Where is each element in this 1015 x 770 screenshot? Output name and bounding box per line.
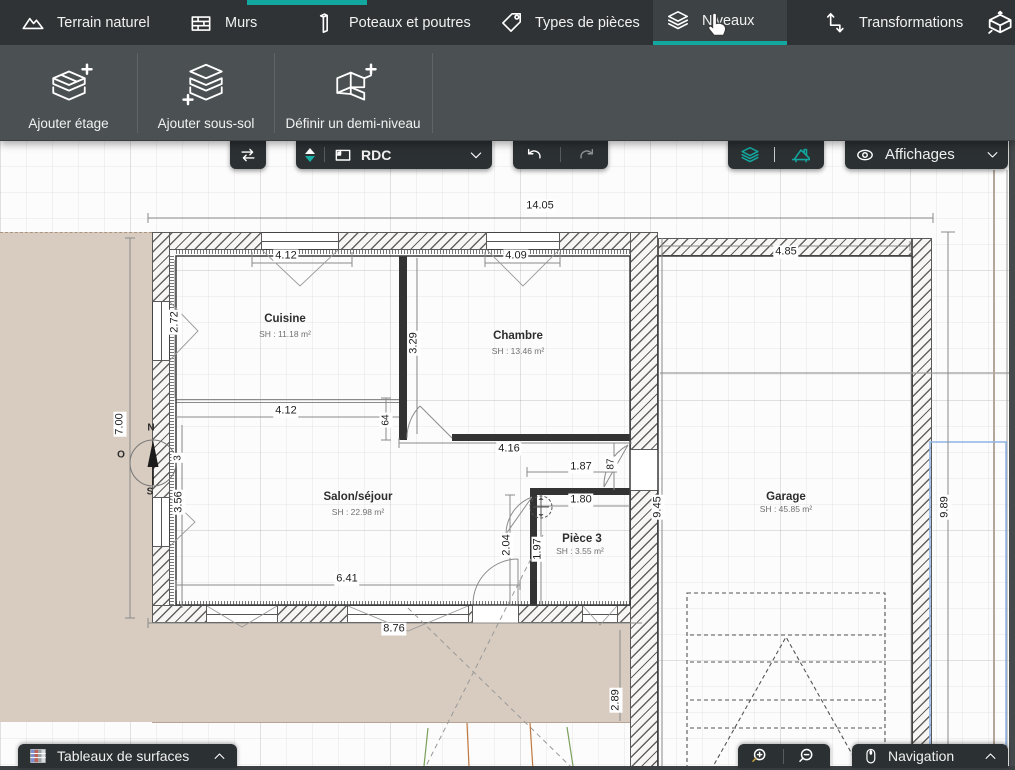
- transform-icon: [822, 10, 848, 36]
- room-area-piece3: SH : 3.55 m²: [556, 546, 604, 556]
- dimension-label: 2.89: [610, 687, 623, 712]
- surfaces-panel-toggle[interactable]: Tableaux de surfaces: [18, 744, 237, 768]
- mouse-icon: [862, 747, 879, 766]
- undo-redo-group: [513, 140, 608, 169]
- zoom-controls: [738, 744, 830, 768]
- room-name-cuisine[interactable]: Cuisine: [264, 313, 306, 325]
- add-basement-label: Ajouter sous-sol: [158, 116, 255, 131]
- tab-murs[interactable]: Murs: [176, 0, 269, 45]
- dimension-label: 3.29: [408, 330, 421, 355]
- dimension-label: 2.72: [169, 309, 182, 334]
- roof-view-icon[interactable]: [789, 144, 813, 166]
- move-handle: [530, 496, 552, 518]
- navigation-label: Navigation: [888, 748, 954, 764]
- room-area-garage: SH : 45.85 m²: [760, 504, 812, 514]
- affichages-dropdown[interactable]: Affichages: [845, 140, 1008, 169]
- dimension-label: 4.85: [773, 246, 798, 259]
- tab-terrain-naturel[interactable]: Terrain naturel: [8, 0, 162, 45]
- box-3d-icon: [984, 9, 1014, 37]
- level-selector[interactable]: RDC: [296, 140, 492, 169]
- tab-label: Murs: [225, 15, 257, 31]
- compass-west-label: O: [117, 450, 125, 461]
- room-area-chambre: SH : 13.46 m²: [492, 346, 544, 356]
- window-right-edge: [1009, 140, 1015, 770]
- dimension-label: 14.05: [524, 200, 556, 213]
- tab-label: Poteaux et poutres: [349, 15, 471, 31]
- compass-south-label: S: [147, 487, 154, 498]
- tab-label: Terrain naturel: [57, 15, 150, 31]
- dimension-label: 87: [605, 456, 618, 471]
- divider: [560, 147, 561, 162]
- dimension-label: 1.80: [568, 494, 593, 507]
- tag-icon: [498, 10, 524, 36]
- surface-table-icon: [28, 747, 48, 765]
- bricks-icon: [188, 10, 214, 36]
- tab-label: Niveaux: [702, 13, 754, 29]
- view-mode-group: [728, 140, 824, 169]
- floorplan-icon: [333, 145, 353, 165]
- affichages-label: Affichages: [885, 146, 955, 163]
- tab-transformations[interactable]: Transformations: [810, 0, 975, 45]
- eye-icon: [853, 145, 877, 165]
- chevron-down-icon: [468, 147, 484, 163]
- tab-overflow-partial[interactable]: [980, 0, 1015, 45]
- dimension-label: 9.89: [939, 494, 952, 519]
- dimension-label: 4.12: [273, 405, 298, 418]
- define-half-level-label: Définir un demi-niveau: [285, 116, 420, 131]
- tab-types-de-pieces[interactable]: Types de pièces: [486, 0, 652, 45]
- tab-poteaux-et-poutres[interactable]: Poteaux et poutres: [300, 0, 483, 45]
- room-name-salon[interactable]: Salon/séjour: [323, 491, 392, 503]
- compass-north-label: N: [147, 423, 154, 434]
- swap-icon: [238, 145, 258, 165]
- add-floor-label: Ajouter étage: [28, 116, 108, 131]
- tab-label: Transformations: [859, 15, 963, 31]
- dimension-label: 8.76: [381, 623, 406, 636]
- dimension-label: 4.16: [496, 443, 521, 456]
- application-window: Terrain naturel Murs Poteaux et poutres …: [0, 0, 1015, 770]
- room-area-salon: SH : 22.98 m²: [332, 507, 384, 517]
- dimension-label: 64: [380, 412, 393, 427]
- room-name-piece3[interactable]: Pièce 3: [562, 533, 602, 545]
- chevron-up-icon: [983, 749, 998, 764]
- room-name-chambre[interactable]: Chambre: [493, 330, 543, 342]
- column-icon: [312, 10, 338, 36]
- dimension-label: 9.45: [652, 494, 665, 519]
- add-floor-icon: [42, 60, 96, 116]
- dimension-label: 3.56: [173, 489, 186, 514]
- dimension-label: 1.97: [532, 536, 545, 561]
- zoom-out-icon[interactable]: [797, 746, 818, 767]
- dimension-label: 4.09: [503, 250, 528, 263]
- room-area-cuisine: SH : 11.18 m²: [259, 329, 311, 339]
- undo-button[interactable]: [524, 145, 545, 165]
- dimension-label: 3: [172, 453, 185, 463]
- layers-icon: [665, 8, 691, 34]
- mountain-icon: [20, 10, 46, 36]
- compare-levels-button[interactable]: [230, 140, 266, 169]
- define-half-level-button[interactable]: Définir un demi-niveau: [275, 45, 431, 140]
- levels-view-icon[interactable]: [739, 144, 761, 166]
- ribbon-divider: [432, 53, 433, 133]
- divider: [774, 147, 775, 162]
- zoom-in-icon[interactable]: [750, 746, 771, 767]
- dimension-label: 1.87: [568, 461, 593, 474]
- chevron-up-icon: [212, 749, 227, 764]
- divider: [324, 147, 325, 162]
- level-stepper-icon[interactable]: [304, 146, 316, 164]
- floorplan-canvas[interactable]: 14.05 4.12 4.09 4.85 2.72 3.29 4.12 64 7…: [0, 140, 1015, 770]
- add-basement-button[interactable]: Ajouter sous-sol: [138, 45, 274, 140]
- chevron-down-icon: [985, 147, 1000, 162]
- surfaces-label: Tableaux de surfaces: [57, 748, 189, 764]
- navigation-panel-toggle[interactable]: Navigation: [852, 744, 1008, 768]
- add-floor-button[interactable]: Ajouter étage: [0, 45, 137, 140]
- compass: [130, 440, 176, 486]
- dimension-label: 6.41: [334, 573, 359, 586]
- dimension-label: 2.04: [501, 532, 514, 557]
- ribbon-niveaux: Ajouter étage Ajouter sous-sol Définir u…: [0, 45, 1015, 141]
- tab-niveaux[interactable]: Niveaux: [653, 0, 787, 45]
- room-name-garage[interactable]: Garage: [766, 491, 806, 503]
- divider: [783, 749, 784, 764]
- level-value: RDC: [361, 147, 391, 163]
- tab-label: Types de pièces: [535, 15, 640, 31]
- dimension-label: 7.00: [114, 411, 127, 436]
- define-half-level-icon: [326, 60, 380, 116]
- top-tab-bar: Terrain naturel Murs Poteaux et poutres …: [0, 0, 1015, 45]
- dimension-label: 4.12: [273, 250, 298, 263]
- redo-button[interactable]: [576, 145, 597, 165]
- add-basement-icon: [179, 60, 233, 116]
